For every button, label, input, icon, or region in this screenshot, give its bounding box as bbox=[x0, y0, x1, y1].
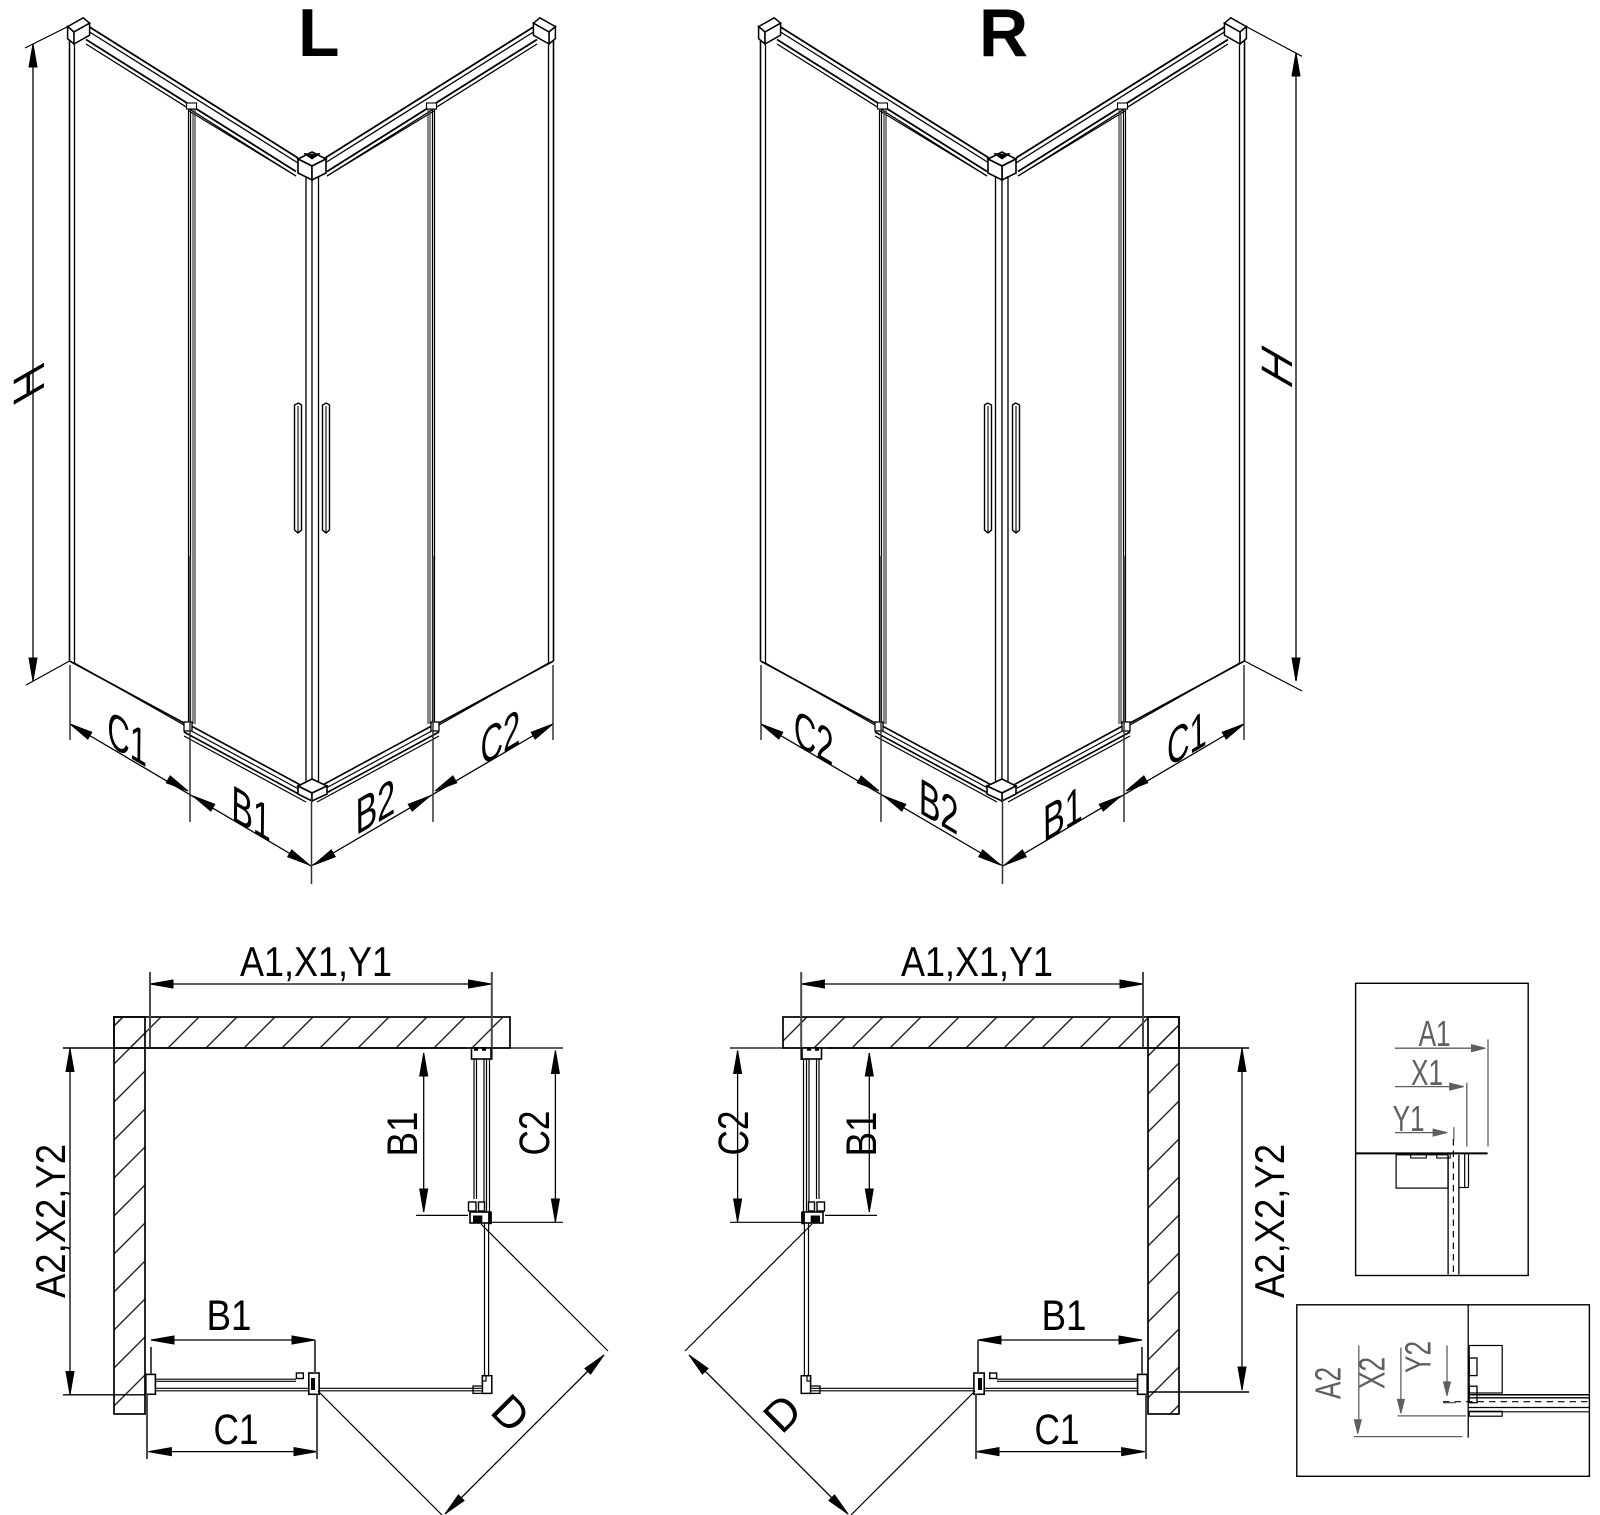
svg-text:A2,X2,Y2: A2,X2,Y2 bbox=[1246, 1144, 1293, 1298]
svg-text:R: R bbox=[979, 0, 1028, 71]
svg-text:X2: X2 bbox=[1352, 1357, 1393, 1389]
svg-text:C1: C1 bbox=[1035, 1406, 1080, 1454]
svg-text:A1: A1 bbox=[1419, 1013, 1451, 1054]
svg-text:Y1: Y1 bbox=[1393, 1098, 1425, 1139]
svg-text:A2: A2 bbox=[1308, 1367, 1349, 1399]
svg-text:B1: B1 bbox=[207, 1292, 252, 1340]
svg-text:C1: C1 bbox=[214, 1406, 259, 1454]
svg-text:A2,X2,Y2: A2,X2,Y2 bbox=[27, 1144, 74, 1298]
svg-text:B1: B1 bbox=[838, 1112, 886, 1157]
svg-text:A1,X1,Y1: A1,X1,Y1 bbox=[240, 938, 392, 985]
svg-text:X1: X1 bbox=[1411, 1052, 1443, 1093]
svg-text:B1: B1 bbox=[379, 1112, 427, 1157]
svg-text:L: L bbox=[298, 0, 340, 71]
svg-text:C2: C2 bbox=[511, 1111, 559, 1156]
svg-text:C2: C2 bbox=[710, 1111, 758, 1156]
svg-text:B1: B1 bbox=[1042, 1292, 1087, 1340]
svg-text:A1,X1,Y1: A1,X1,Y1 bbox=[901, 938, 1053, 985]
svg-text:Y2: Y2 bbox=[1398, 1341, 1439, 1373]
